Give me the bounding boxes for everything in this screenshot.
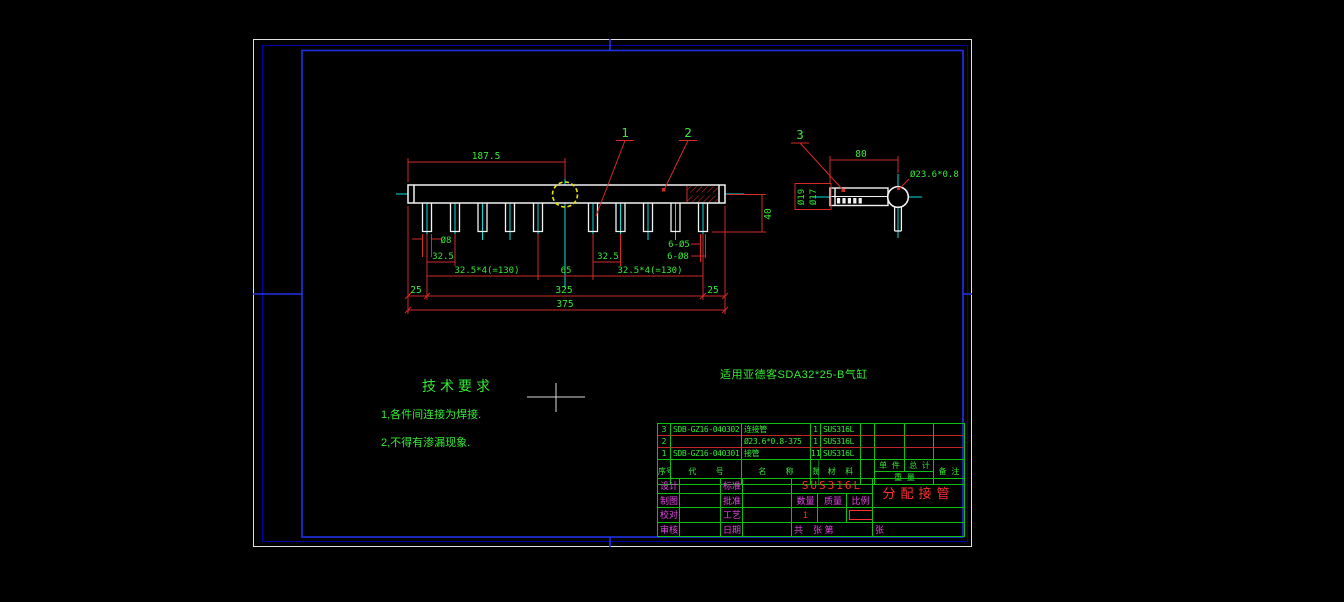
crosshair-cursor [527, 383, 585, 412]
dim-tube-spec: Ø23.6*0.8 [910, 169, 959, 180]
scale-box [849, 510, 873, 520]
application-note: 适用亚德客SDA32*25-B气缸 [720, 366, 868, 382]
dim-pitch-group-left: 32.5*4(=130) [454, 266, 519, 276]
side-view: 80 Ø23.6*0.8 Ø19 Ø17 3 [791, 127, 959, 238]
label-date: 日期 [721, 523, 743, 536]
leader-dot [897, 187, 900, 190]
part-material: SUS316L [821, 424, 861, 436]
scale-cell [847, 508, 873, 523]
label-check: 校对 [658, 508, 680, 523]
dim-inner-dia: Ø17 [808, 189, 819, 205]
label-standard: 标准 [721, 479, 743, 494]
part-qty: 1 [811, 436, 821, 448]
tech-requirement-1: 1,各件间连接为焊接. [381, 406, 481, 422]
label-process: 工艺 [721, 508, 743, 523]
dim-pitch-right: 32.5 [597, 252, 619, 262]
material-value: SUS316L [792, 479, 873, 494]
tech-requirements-title: 技术要求 [422, 376, 494, 396]
dim-half-length: 187.5 [472, 151, 501, 162]
label-mass: 质量 [818, 494, 847, 508]
balloon-2: 2 [684, 125, 692, 140]
dim-holes-small: 6-Ø5 [668, 239, 690, 250]
dim-pitch-left: 32.5 [432, 252, 454, 262]
part-seq: 3 [658, 424, 671, 436]
dim-span-inner: 325 [555, 285, 572, 296]
part-code: SDB-GZ16-040301 [671, 448, 742, 460]
part-title: 分配接管 [873, 479, 964, 508]
dim-holes-large: 6-Ø8 [667, 251, 689, 262]
tech-requirement-2: 2,不得有渗漏现象. [381, 434, 470, 450]
dim-pitch-group-right: 32.5*4(=130) [617, 266, 682, 276]
dim-center-gap: 65 [561, 266, 572, 276]
part-qty: 11 [811, 448, 821, 460]
dim-margin-left: 25 [410, 285, 421, 296]
label-draft: 制图 [658, 494, 680, 508]
dim-outer-dia: Ø19 [796, 189, 807, 205]
part-name: 接管 [742, 448, 811, 460]
balloon-leaders [596, 141, 697, 217]
part-code [671, 436, 742, 448]
qty-value: 1 [792, 508, 818, 523]
part-material: SUS316L [821, 436, 861, 448]
dim-stub-od: Ø8 [441, 235, 452, 246]
manifold-pipe [408, 185, 725, 203]
dim-stub-height: 40 [763, 208, 774, 220]
part-seq: 1 [658, 448, 671, 460]
dim-margin-right: 25 [707, 285, 718, 296]
dim-total-length: 375 [556, 299, 573, 310]
header-unit-weight: 单 件 [875, 460, 905, 472]
part-name: Ø23.6*0.8-375 [742, 436, 811, 448]
cad-viewport[interactable]: 187.5 Ø8 32.5 32.5*4(=130) 65 32.5 32.5*… [0, 0, 1344, 602]
dim-connector-length: 80 [855, 149, 867, 160]
part-name: 连接管 [742, 424, 811, 436]
main-view: 187.5 Ø8 32.5 32.5*4(=130) 65 32.5 32.5*… [396, 125, 774, 314]
label-qty: 数量 [792, 494, 818, 508]
label-approve: 批准 [721, 494, 743, 508]
balloon-3: 3 [796, 127, 804, 142]
part-material: SUS316L [821, 448, 861, 460]
header-total-weight: 总 计 [905, 460, 934, 472]
balloon-1: 1 [621, 125, 629, 140]
parts-table: 3 SDB-GZ16-040302 连接管 1 SUS316L 2 Ø23.6*… [657, 423, 965, 485]
label-scale: 比例 [847, 494, 873, 508]
sheet-count-last: 张 [873, 523, 964, 536]
balloon-3-dot [842, 189, 846, 193]
label-review: 审核 [658, 523, 680, 536]
part-qty: 1 [811, 424, 821, 436]
part-seq: 2 [658, 436, 671, 448]
title-block: 设计 标准 SUS316L 分配接管 制图 批准 数量 质量 比例 校对 工艺 … [657, 478, 965, 537]
label-design: 设计 [658, 479, 680, 494]
sheet-count: 共 张 第 [792, 523, 873, 536]
part-code: SDB-GZ16-040302 [671, 424, 742, 436]
